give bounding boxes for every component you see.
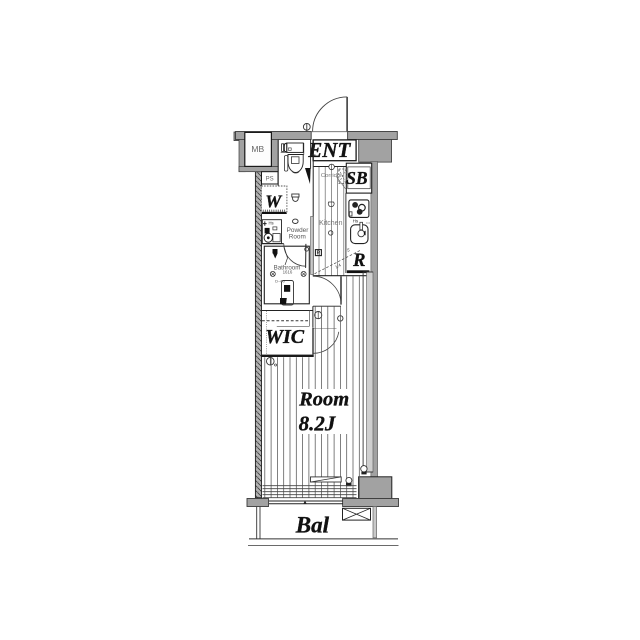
svg-text:1616: 1616 (283, 269, 293, 274)
svg-text:R: R (352, 251, 365, 271)
svg-text:WIC: WIC (265, 326, 305, 348)
svg-text:MB: MB (251, 144, 264, 154)
svg-text:W: W (265, 192, 283, 212)
svg-text:Room: Room (298, 388, 349, 410)
svg-text:8.2J: 8.2J (299, 412, 337, 436)
svg-text:ENT: ENT (307, 138, 351, 162)
svg-text:R: R (317, 251, 321, 257)
svg-text:Hs: Hs (269, 221, 274, 226)
svg-text:Hs: Hs (353, 219, 359, 224)
svg-text:Kitchen: Kitchen (319, 220, 342, 227)
svg-text:SB: SB (346, 168, 368, 188)
svg-text:D~60: D~60 (275, 279, 285, 284)
svg-text:PS: PS (266, 176, 274, 182)
svg-text:Room: Room (289, 234, 306, 241)
svg-text:Bal: Bal (295, 512, 330, 537)
